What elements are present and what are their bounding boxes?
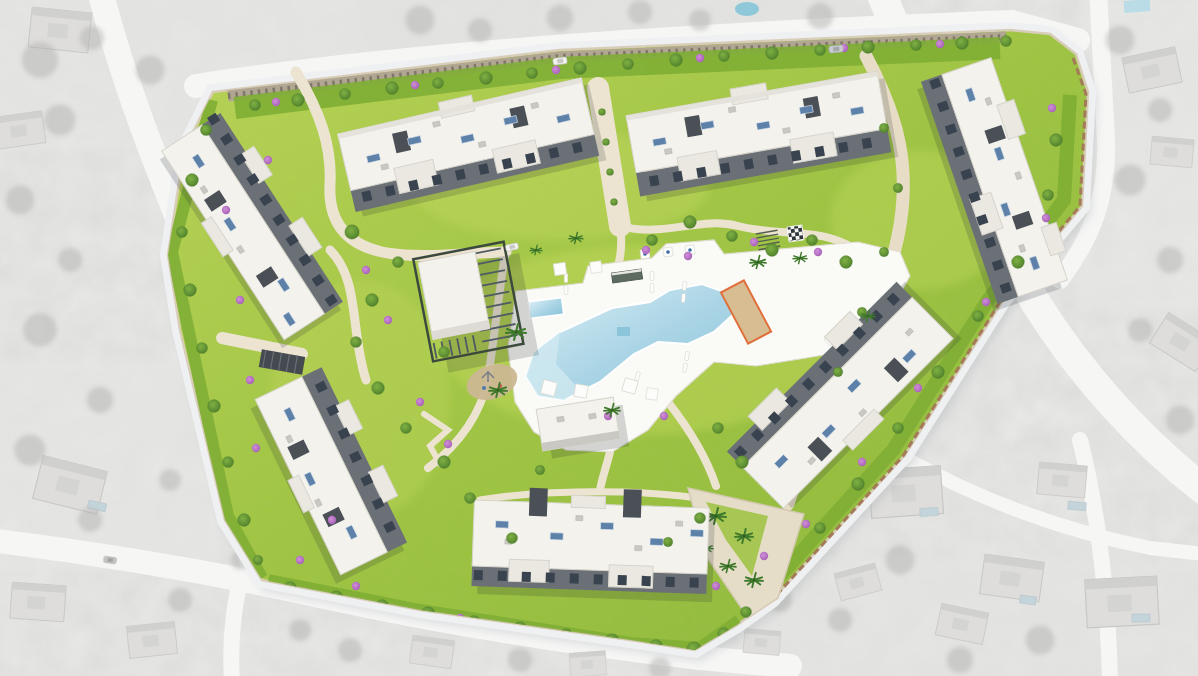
masterplan-image <box>0 0 1198 676</box>
car-silver-top <box>829 45 844 53</box>
clubhouse-with-pergola <box>413 239 539 375</box>
masterplan-svg <box>0 0 1198 676</box>
car-white-top <box>553 57 568 66</box>
giant-chess-board <box>787 225 804 242</box>
pool-step <box>617 327 630 336</box>
lap-pool <box>528 297 564 318</box>
